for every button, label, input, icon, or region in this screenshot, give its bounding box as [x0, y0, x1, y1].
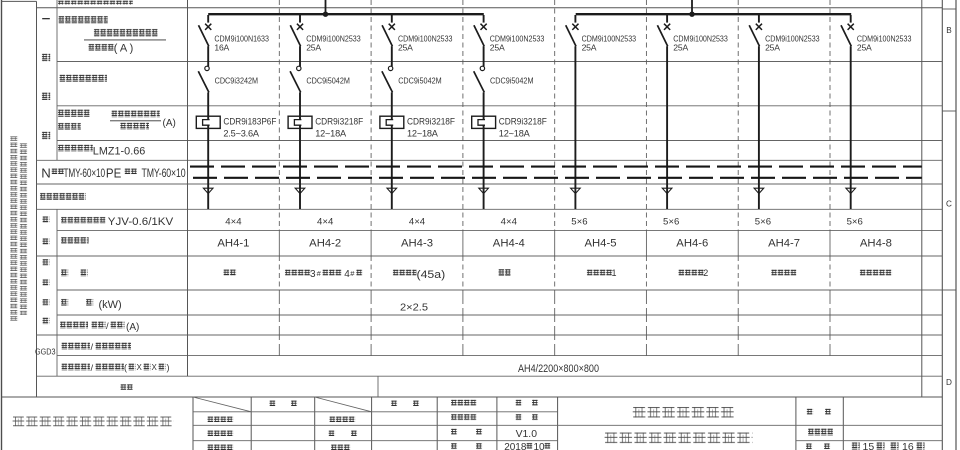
svg-text:25A: 25A: [857, 43, 872, 53]
svg-text:D: D: [946, 378, 952, 387]
svg-text:C: C: [946, 200, 952, 209]
svg-text:CDC9i3242M: CDC9i3242M: [215, 75, 259, 85]
svg-text:/: /: [91, 363, 94, 374]
svg-text:V1.0: V1.0: [516, 429, 538, 440]
svg-text:25A: 25A: [306, 43, 321, 53]
svg-text:10: 10: [534, 442, 546, 450]
svg-text:5×6: 5×6: [755, 216, 771, 227]
svg-text:AH4-4: AH4-4: [493, 238, 525, 250]
svg-text:PE: PE: [106, 166, 122, 181]
svg-text:(A): (A): [126, 322, 139, 333]
svg-text:25A: 25A: [673, 43, 688, 53]
svg-text:): ): [167, 363, 170, 373]
svg-text:(kW): (kW): [99, 299, 122, 311]
svg-text:2018: 2018: [504, 442, 527, 450]
svg-text:2: 2: [703, 268, 708, 278]
svg-text:X: X: [152, 363, 158, 372]
svg-text:15: 15: [863, 441, 875, 450]
svg-text:AH4-2: AH4-2: [309, 238, 341, 250]
svg-text:(: (: [124, 363, 127, 373]
svg-text:25A: 25A: [582, 43, 597, 53]
svg-text:CDR9i3218F: CDR9i3218F: [315, 117, 363, 127]
svg-text:5×6: 5×6: [847, 216, 863, 227]
svg-text:AH4-6: AH4-6: [676, 238, 708, 250]
svg-text:4×4: 4×4: [225, 216, 242, 227]
svg-text:3: 3: [310, 269, 316, 280]
svg-text:CDR9i3218F: CDR9i3218F: [499, 117, 547, 127]
svg-text:5×6: 5×6: [663, 216, 679, 227]
svg-text:12~18A: 12~18A: [315, 128, 347, 138]
svg-text:AH4/2200×800×800: AH4/2200×800×800: [518, 363, 599, 375]
svg-text:(A): (A): [163, 118, 176, 129]
svg-text:AH4-8: AH4-8: [860, 238, 892, 250]
svg-text:CDC9i5042M: CDC9i5042M: [398, 75, 442, 85]
svg-text:25A: 25A: [490, 43, 505, 53]
svg-text:LMZ1-0.66: LMZ1-0.66: [93, 145, 146, 157]
svg-text:YJV-0.6/1KV: YJV-0.6/1KV: [108, 216, 174, 228]
svg-text:TMY-60×10: TMY-60×10: [142, 166, 186, 180]
svg-text:N: N: [41, 166, 51, 181]
svg-text:( A ): ( A ): [114, 43, 134, 55]
svg-text:B: B: [946, 26, 952, 35]
svg-text:5×6: 5×6: [571, 216, 587, 227]
svg-text:AH4-5: AH4-5: [585, 238, 617, 250]
svg-text:AH4-7: AH4-7: [768, 238, 800, 250]
svg-text:CDR9i183P6F: CDR9i183P6F: [223, 117, 276, 127]
svg-text:25A: 25A: [765, 43, 780, 53]
svg-text:12~18A: 12~18A: [499, 128, 531, 138]
svg-text:/: /: [91, 342, 94, 353]
svg-text:X: X: [137, 363, 143, 372]
svg-text:(45a): (45a): [417, 269, 446, 281]
svg-text:CDC9i5042M: CDC9i5042M: [306, 75, 350, 85]
svg-text:2.5~3.6A: 2.5~3.6A: [223, 128, 260, 138]
svg-text:12~18A: 12~18A: [407, 128, 439, 138]
svg-text:16A: 16A: [214, 43, 229, 53]
svg-text:CDR9i3218F: CDR9i3218F: [407, 117, 455, 127]
svg-text:CDC9i5042M: CDC9i5042M: [490, 75, 534, 85]
svg-text:AH4-3: AH4-3: [401, 238, 433, 250]
svg-text:4×4: 4×4: [409, 216, 426, 227]
svg-text:/: /: [106, 321, 109, 332]
svg-text:4×4: 4×4: [317, 216, 334, 227]
svg-text:GGD3: GGD3: [35, 347, 56, 357]
svg-text:1: 1: [612, 268, 617, 278]
svg-text:TMY-60×10: TMY-60×10: [64, 166, 106, 180]
svg-text:4×4: 4×4: [501, 216, 518, 227]
svg-text:2×2.5: 2×2.5: [400, 302, 428, 313]
svg-text:16: 16: [902, 441, 914, 450]
svg-text:25A: 25A: [398, 43, 413, 53]
svg-text:AH4-1: AH4-1: [217, 238, 249, 250]
